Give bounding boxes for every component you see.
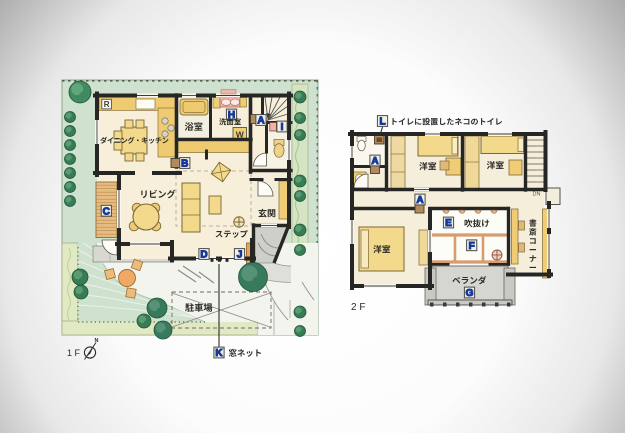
- svg-text:R: R: [104, 100, 110, 109]
- svg-text:A: A: [371, 156, 378, 167]
- svg-text:A: A: [257, 116, 264, 127]
- svg-text:N: N: [95, 338, 99, 344]
- svg-text:DN: DN: [533, 192, 541, 198]
- svg-text:1 F: 1 F: [67, 348, 81, 358]
- svg-text:A: A: [416, 195, 423, 206]
- svg-text:G: G: [466, 288, 474, 299]
- svg-text:C: C: [103, 206, 110, 217]
- svg-text:I: I: [281, 122, 284, 133]
- svg-text:H: H: [228, 110, 235, 121]
- svg-text:2 F: 2 F: [351, 302, 365, 313]
- svg-text:L: L: [379, 117, 385, 128]
- svg-text:E: E: [445, 218, 452, 229]
- svg-text:B: B: [181, 159, 188, 170]
- svg-text:J: J: [237, 250, 243, 261]
- svg-text:D: D: [200, 250, 207, 261]
- svg-text:F: F: [469, 241, 475, 252]
- svg-text:K: K: [215, 348, 223, 359]
